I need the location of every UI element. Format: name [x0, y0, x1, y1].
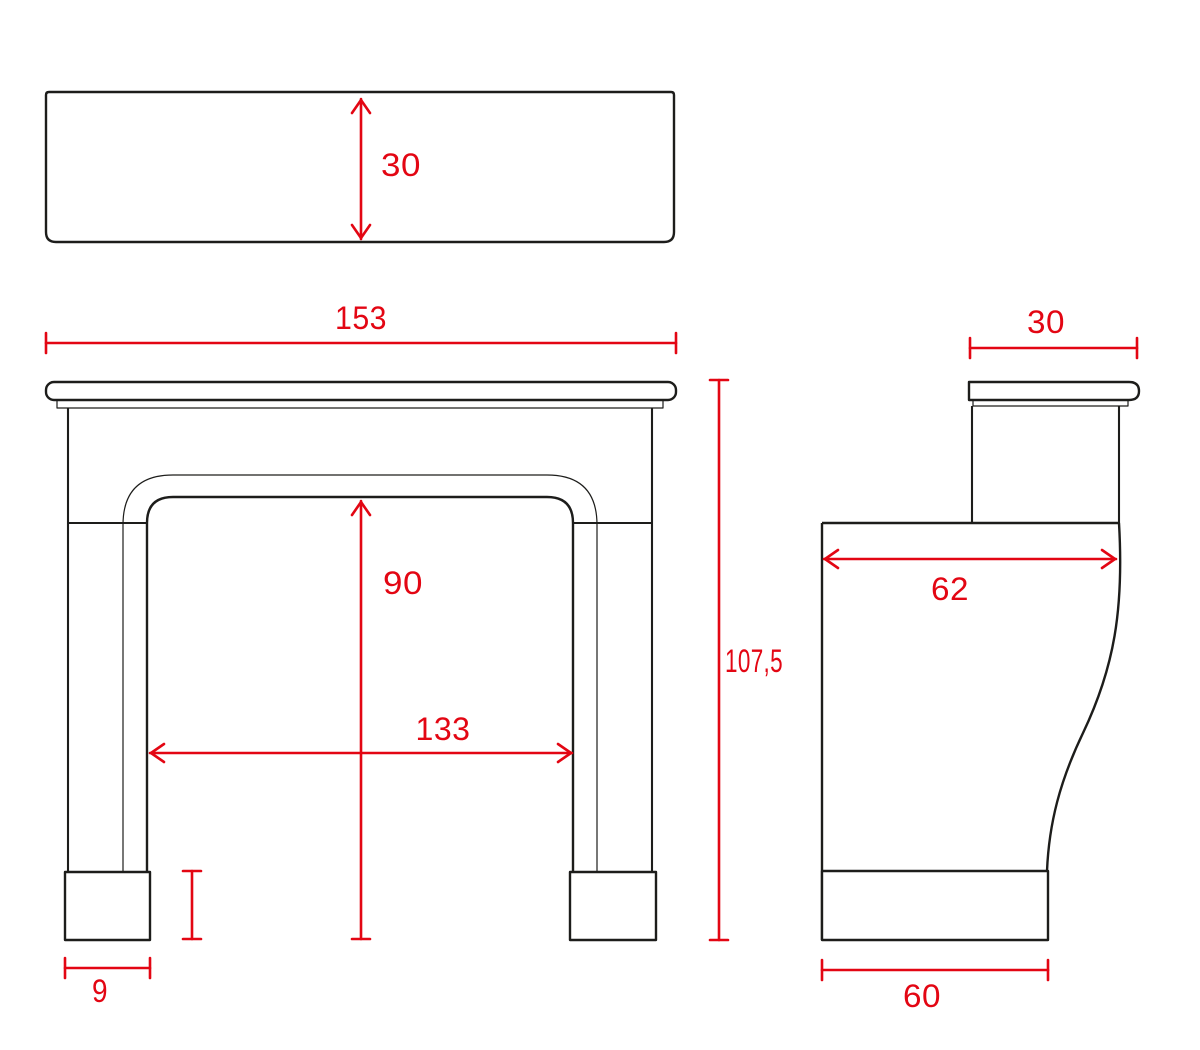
dim-base-depth-label: 60 [903, 978, 941, 1014]
dim-opening-width-label: 133 [416, 711, 471, 747]
dim-body-depth-label: 62 [931, 571, 969, 607]
technical-drawing-canvas: 30 153 [0, 0, 1200, 1050]
side-console-curve [1047, 523, 1120, 871]
front-shelf [46, 382, 676, 400]
dim-overall-height-label: 107,5 [725, 643, 783, 679]
dim-body-depth: 62 [824, 550, 1116, 607]
dim-overall-width: 153 [46, 300, 676, 353]
dim-overall-height: 107,5 [710, 380, 783, 940]
dim-shelf-depth: 30 [970, 304, 1137, 358]
dim-base-depth: 60 [822, 960, 1048, 1014]
front-foot-right [570, 872, 656, 940]
dim-top-depth-label: 30 [381, 147, 421, 183]
front-foot-left [65, 872, 150, 940]
side-shelf [969, 382, 1139, 400]
dim-foot-height [183, 871, 201, 939]
mantel-dimension-drawing: 30 153 [0, 0, 1200, 1050]
side-plinth [822, 871, 1048, 940]
dim-leg-width: 9 [65, 958, 150, 1009]
dim-shelf-depth-label: 30 [1027, 304, 1065, 340]
front-shelf-moulding [57, 400, 663, 408]
dim-opening-height: 90 [352, 501, 423, 939]
dim-overall-width-label: 153 [335, 300, 387, 336]
top-view: 30 [46, 92, 674, 242]
dim-opening-height-label: 90 [383, 565, 423, 601]
dim-leg-width-label: 9 [92, 973, 108, 1009]
side-view: 30 62 [822, 304, 1139, 1014]
